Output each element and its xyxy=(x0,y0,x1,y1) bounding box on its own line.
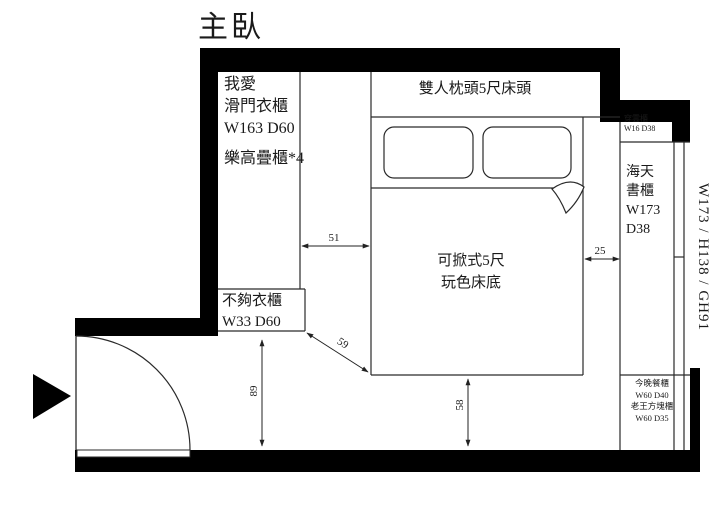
wall-right-lower xyxy=(690,368,700,458)
bookcase-line1: 海天 xyxy=(626,163,660,182)
corner-cabinets-label: 今晚餐櫃 W60 D40 老王方塊櫃 W60 D35 xyxy=(616,378,688,424)
dim-label-51: 51 xyxy=(329,232,340,244)
bookcase-label: 海天 書櫃 W173 D38 xyxy=(626,163,660,239)
top-cabinet-label: 穿雲櫃 W16 D38 xyxy=(624,114,655,134)
floorplan-page: 51 25 59 89 58 主臥 我愛 滑門衣櫃 W163 D60 樂高疊櫃*… xyxy=(0,0,727,505)
window-dimension-label: W173 / H138 / GH91 xyxy=(693,183,713,331)
wardrobe-label-size: W163 D60 xyxy=(224,118,304,140)
headboard-label: 雙人枕頭5尺床頭 xyxy=(380,79,570,99)
floorplan-svg: 51 25 59 89 58 xyxy=(0,0,727,505)
blanket-fold-corner xyxy=(552,182,584,213)
dim-label-58: 58 xyxy=(454,399,466,411)
wall-left xyxy=(200,48,218,318)
bookcase-width: W173 xyxy=(626,201,660,220)
bed-label: 可掀式5尺 玩色床底 xyxy=(391,250,551,294)
small-wardrobe-label: 不夠衣櫃 W33 D60 xyxy=(222,291,282,333)
wall-topright-step xyxy=(672,122,690,142)
top-cabinet-name: 穿雲櫃 xyxy=(624,114,655,124)
dim-line-59 xyxy=(307,333,368,372)
wardrobe-label-line1: 我愛 xyxy=(224,74,304,96)
dim-label-59: 59 xyxy=(335,335,351,351)
door-swing-arc xyxy=(76,336,190,450)
door-hinge-nub xyxy=(76,331,88,336)
dinner-cabinet-name: 今晚餐櫃 xyxy=(616,378,688,390)
cube-cabinet-name: 老王方塊櫃 xyxy=(616,401,688,413)
cube-cabinet-size: W60 D35 xyxy=(616,413,688,425)
bed-label-line1: 可掀式5尺 xyxy=(391,250,551,272)
lego-stack-cabinet-label: 樂高疊櫃*4 xyxy=(224,148,304,170)
dim-label-89: 89 xyxy=(248,385,260,397)
page-title: 主臥 xyxy=(198,8,264,49)
bookcase-line2: 書櫃 xyxy=(626,182,660,201)
wardrobe-label-line2: 滑門衣櫃 xyxy=(224,96,304,118)
dim-label-25: 25 xyxy=(595,245,607,257)
bookcase-depth: D38 xyxy=(626,220,660,239)
entry-arrow-icon xyxy=(33,374,71,419)
dinner-cabinet-size: W60 D40 xyxy=(616,390,688,402)
top-cabinet-size: W16 D38 xyxy=(624,124,655,134)
small-wardrobe-name: 不夠衣櫃 xyxy=(222,291,282,312)
wall-top xyxy=(200,48,620,72)
wardrobe-label: 我愛 滑門衣櫃 W163 D60 樂高疊櫃*4 xyxy=(224,74,304,170)
small-wardrobe-size: W33 D60 xyxy=(222,312,282,333)
bed-label-line2: 玩色床底 xyxy=(391,272,551,294)
pillow-left xyxy=(384,127,473,178)
door-leaf xyxy=(77,450,190,457)
wall-entry-top xyxy=(75,318,218,336)
pillow-right xyxy=(483,127,571,178)
